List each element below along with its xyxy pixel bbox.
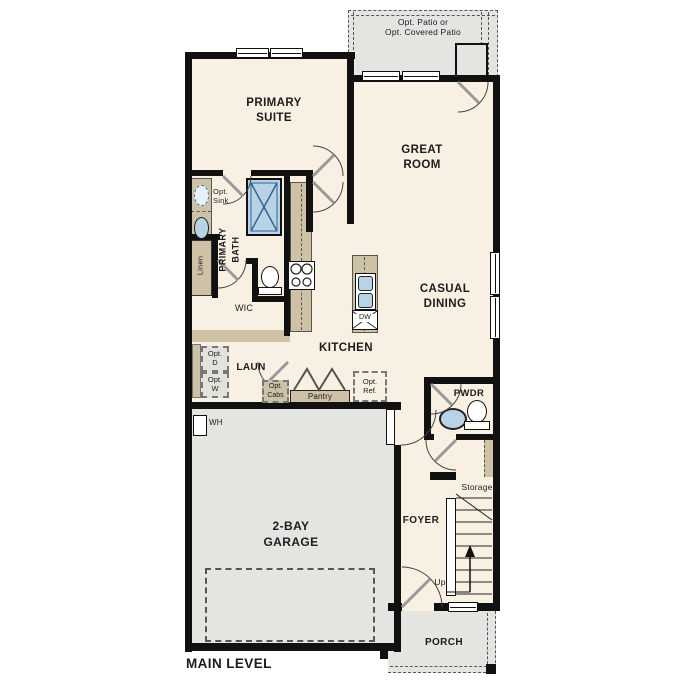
primary-suite-line1: PRIMARY	[208, 96, 340, 111]
door-leaf	[435, 440, 456, 461]
opt-cabs-box: Opt. Cabs	[262, 380, 289, 403]
patio-label: Opt. Patio or Opt. Covered Patio	[358, 17, 488, 37]
primary-bath-label: PRIMARY BATH	[216, 212, 241, 288]
primary-bath-line2: BATH	[229, 212, 242, 288]
up-arrow-head	[465, 545, 475, 557]
garage-line1: 2-BAY	[235, 519, 347, 535]
burner	[291, 264, 301, 274]
up-label: Up	[431, 577, 449, 587]
porch-label: PORCH	[418, 636, 470, 649]
opt-sink-label: Opt. Sink	[213, 188, 239, 206]
great-room-label: GREAT ROOM	[378, 143, 466, 173]
garage-line2: GARAGE	[235, 535, 347, 551]
garage-door-zone	[205, 568, 375, 642]
burner	[292, 278, 300, 286]
stove-burners	[291, 264, 312, 286]
dishwasher-label: DW	[355, 314, 375, 322]
garage-label: 2-BAY GARAGE	[235, 519, 347, 550]
burner	[302, 264, 312, 274]
casual-dining-label: CASUAL DINING	[398, 282, 492, 312]
opt-washer-box: Opt. W	[201, 372, 229, 398]
patio-label-line1: Opt. Patio or	[358, 17, 488, 27]
plan-title: MAIN LEVEL	[186, 655, 326, 673]
primary-suite-label: PRIMARY SUITE	[208, 96, 340, 126]
pantry-bifold-doors	[294, 369, 345, 390]
door-leaf	[458, 82, 479, 103]
wic-label: WIC	[226, 303, 262, 314]
opt-ref-box: Opt. Ref.	[353, 371, 387, 402]
opt-cabs-label: Opt.	[264, 383, 287, 391]
pantry-label: Pantry	[292, 392, 348, 401]
opt-cabs-label: Cabs	[264, 392, 287, 400]
opt-ref-label: Ref.	[355, 387, 385, 396]
foyer-label: FOYER	[398, 514, 444, 527]
stair-treads	[456, 494, 492, 594]
great-room-line2: ROOM	[378, 158, 466, 173]
kitchen-label: KITCHEN	[306, 341, 386, 356]
casual-dining-line2: DINING	[398, 297, 492, 312]
door-arc	[401, 410, 436, 445]
opt-dryer-label: D	[203, 359, 227, 368]
casual-dining-line1: CASUAL	[398, 282, 492, 297]
storage-label: Storage	[456, 482, 498, 492]
shower-glass	[251, 183, 277, 231]
door-leaf	[313, 182, 334, 203]
powder-label: PWDR	[446, 388, 492, 400]
opt-sink-line2: Sink	[213, 197, 239, 206]
linen-label: Linen	[197, 241, 206, 289]
burner	[303, 278, 311, 286]
primary-suite-line2: SUITE	[208, 111, 340, 126]
floor-plan: DW Opt. D Opt. W Opt. Cabs Opt. Ref. Opt…	[0, 0, 687, 687]
water-heater-label: WH	[209, 418, 231, 427]
patio-label-line2: Opt. Covered Patio	[358, 27, 488, 37]
great-room-line1: GREAT	[378, 143, 466, 158]
opt-washer-label: W	[203, 385, 227, 394]
stair-direction	[447, 545, 475, 592]
door-leaf	[402, 579, 430, 607]
door-leaf	[313, 155, 334, 176]
opt-dryer-box: Opt. D	[201, 346, 229, 372]
laundry-label: LAUN	[228, 361, 274, 374]
primary-bath-line1: PRIMARY	[216, 212, 229, 288]
